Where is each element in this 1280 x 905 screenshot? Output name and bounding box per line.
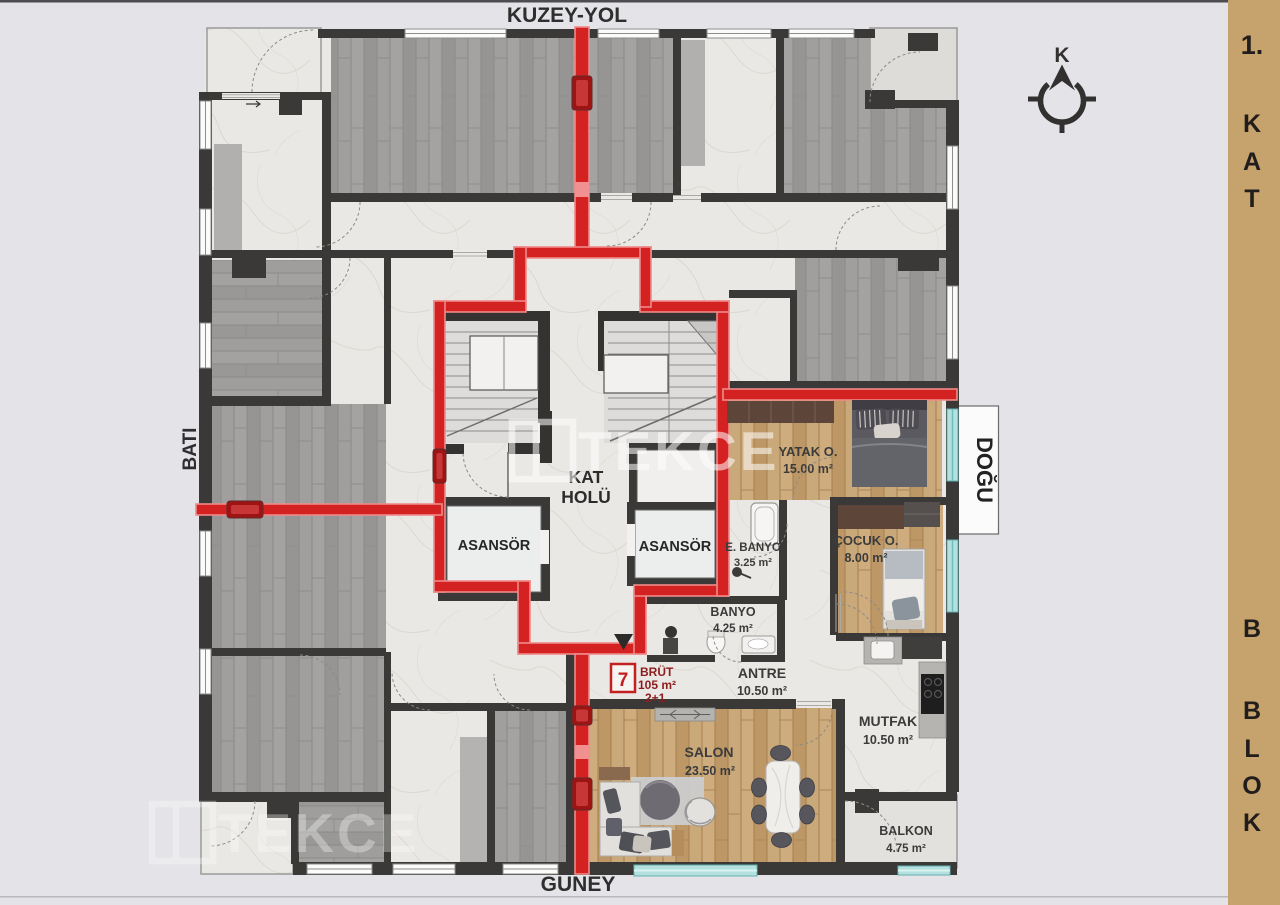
svg-text:4.75 m²: 4.75 m²: [886, 843, 926, 855]
svg-text:10.50 m²: 10.50 m²: [863, 733, 913, 747]
svg-text:B: B: [1243, 697, 1261, 725]
svg-text:YATAK O.: YATAK O.: [779, 444, 838, 459]
svg-text:TEKCE: TEKCE: [578, 420, 779, 482]
svg-text:4.25 m²: 4.25 m²: [713, 623, 753, 635]
svg-text:E. BANYO: E. BANYO: [725, 542, 781, 554]
svg-text:KUZEY-YOL: KUZEY-YOL: [507, 4, 627, 27]
svg-text:23.50 m²: 23.50 m²: [685, 764, 735, 778]
svg-text:A: A: [1243, 148, 1261, 176]
svg-text:HOLÜ: HOLÜ: [561, 487, 611, 507]
svg-text:K: K: [1243, 809, 1261, 837]
svg-text:MUTFAK: MUTFAK: [859, 713, 917, 729]
svg-text:ASANSÖR: ASANSÖR: [458, 537, 531, 554]
svg-text:105 m²: 105 m²: [638, 678, 676, 692]
svg-text:1.: 1.: [1241, 30, 1264, 60]
svg-text:SALON: SALON: [685, 744, 734, 760]
svg-text:3.25 m²: 3.25 m²: [734, 557, 772, 569]
svg-text:K: K: [1054, 44, 1069, 67]
svg-text:B: B: [1243, 615, 1261, 643]
svg-text:T: T: [1244, 185, 1259, 213]
svg-text:2+1: 2+1: [645, 691, 666, 705]
svg-text:15.00 m²: 15.00 m²: [783, 462, 833, 476]
svg-text:BANYO: BANYO: [710, 605, 755, 619]
svg-text:10.50 m²: 10.50 m²: [737, 684, 787, 698]
svg-text:O: O: [1242, 772, 1261, 800]
svg-text:GÜNEY: GÜNEY: [541, 873, 616, 896]
svg-text:L: L: [1244, 735, 1259, 763]
svg-text:ANTRE: ANTRE: [738, 665, 786, 681]
svg-text:7: 7: [618, 670, 629, 691]
svg-text:BALKON: BALKON: [879, 824, 932, 838]
svg-text:8.00 m²: 8.00 m²: [844, 551, 887, 565]
svg-text:ASANSÖR: ASANSÖR: [639, 538, 712, 555]
svg-text:DOĞU: DOĞU: [972, 437, 997, 503]
svg-text:BATI: BATI: [180, 428, 201, 471]
svg-text:K: K: [1243, 110, 1261, 138]
svg-text:ÇOCUK O.: ÇOCUK O.: [834, 533, 899, 548]
svg-text:BRÜT: BRÜT: [640, 664, 674, 679]
svg-text:TEKCE: TEKCE: [218, 802, 419, 864]
